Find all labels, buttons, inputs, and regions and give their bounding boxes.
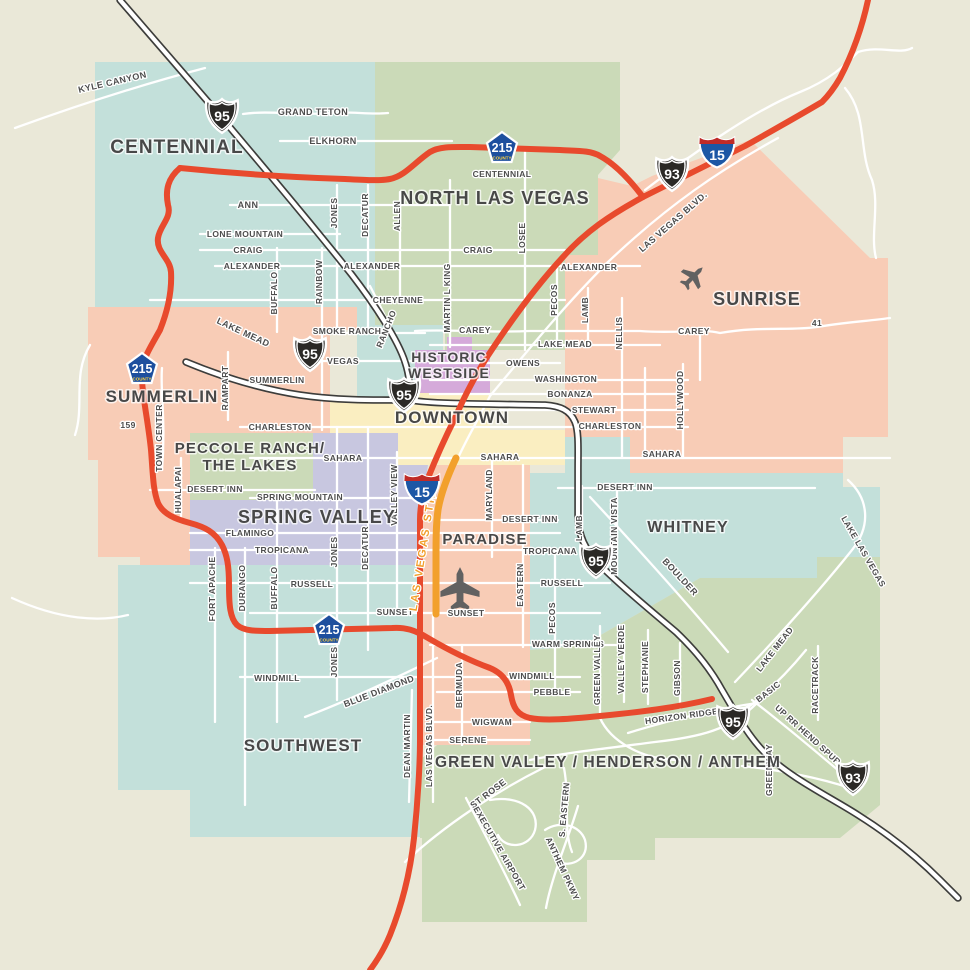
street-label-desert-inn: DESERT INN (502, 514, 557, 524)
street-label-summerlin: SUMMERLIN (249, 375, 304, 385)
street-label-windmill: WINDMILL (509, 671, 555, 681)
street-label-losee: LOSEE (517, 223, 527, 254)
region-label-southwest: SOUTHWEST (244, 736, 363, 755)
las-vegas-neighborhood-map: KYLE CANYONGRAND TETONELKHORNANNLONE MOU… (0, 0, 970, 970)
street-label-jones: JONES (329, 537, 339, 568)
street-label-pecos: PECOS (547, 602, 557, 634)
region-label-peccole-ranch: PECCOLE RANCH/ (175, 440, 325, 457)
us-shield-number: 95 (214, 108, 230, 124)
street-label-desert-inn: DESERT INN (187, 484, 242, 494)
street-label-spring-mountain: SPRING MOUNTAIN (257, 492, 343, 502)
street-label-las-vegas-blvd: LAS VEGAS BLVD. (424, 705, 434, 787)
street-label-town-center: TOWN CENTER (154, 404, 164, 472)
us-shield-number: 95 (725, 714, 741, 730)
street-label-maryland: MARYLAND (484, 469, 494, 521)
street-label-grand-teton: GRAND TETON (278, 107, 348, 117)
street-label-vegas: VEGAS (327, 356, 359, 366)
street-label-cheyenne: CHEYENNE (373, 295, 423, 305)
street-label-hollywood: HOLLYWOOD (675, 370, 685, 429)
street-label-hualapai: HUALAPAI (173, 467, 183, 513)
street-label-stewart: STEWART (572, 405, 617, 415)
street-label-159: 159 (120, 420, 135, 430)
street-label-tropicana: TROPICANA (255, 545, 309, 555)
street-label-pebble: PEBBLE (534, 687, 571, 697)
county-shield-number: 215 (319, 623, 340, 637)
street-label-carey: CAREY (678, 326, 710, 336)
region-label-spring-valley: SPRING VALLEY (238, 507, 396, 527)
street-label-russell: RUSSELL (541, 578, 583, 588)
region-label-sunrise: SUNRISE (713, 289, 801, 309)
street-label-ann: ANN (238, 200, 259, 210)
street-label-pecos: PECOS (549, 284, 559, 316)
street-label-jones: JONES (329, 647, 339, 678)
street-label-nellis: NELLIS (614, 317, 624, 350)
street-label-carey: CAREY (459, 325, 491, 335)
street-label-valley-verde: VALLEY VERDE (616, 624, 626, 693)
interstate-shield-number: 15 (414, 484, 430, 500)
us-shield-number: 95 (396, 387, 412, 403)
county-shield-number: 215 (132, 362, 153, 376)
street-label-sahara: SAHARA (481, 452, 520, 462)
street-label-decatur: DECATUR (360, 193, 370, 237)
street-label-durango: DURANGO (237, 565, 247, 612)
region-label-green-valley-henderson: GREEN VALLEY / HENDERSON / ANTHEM (435, 754, 781, 771)
street-label-sahara: SAHARA (643, 449, 682, 459)
street-label-lamb: LAMB (574, 515, 584, 541)
us-shield-number: 93 (845, 770, 861, 786)
street-label-racetrack: RACETRACK (810, 656, 820, 714)
street-label-dean-martin: DEAN MARTIN (402, 714, 412, 778)
street-label-buffalo: BUFFALO (269, 567, 279, 610)
interstate-shield-number: 15 (709, 147, 725, 163)
county-shield-banner: COUNTY (133, 377, 152, 382)
street-label-charleston: CHARLESTON (579, 421, 642, 431)
map-canvas: KYLE CANYONGRAND TETONELKHORNANNLONE MOU… (0, 0, 970, 970)
street-label-craig: CRAIG (233, 245, 262, 255)
us-shield-number: 95 (302, 346, 318, 362)
region-label-centennial: CENTENNIAL (110, 137, 243, 158)
street-label-russell: RUSSELL (291, 579, 333, 589)
street-label-rainbow: RAINBOW (314, 259, 324, 304)
us-shield-number: 95 (588, 553, 604, 569)
region-label-summerlin: SUMMERLIN (106, 387, 219, 406)
street-label-craig: CRAIG (463, 245, 492, 255)
county-shield-banner: COUNTY (320, 638, 339, 643)
region-label-historic-westside: HISTORIC (411, 349, 486, 365)
street-label-decatur: DECATUR (360, 526, 370, 570)
street-label-41: 41 (812, 318, 822, 328)
region-label-downtown: DOWNTOWN (395, 408, 509, 427)
street-label-stephanie: STEPHANIE (640, 641, 650, 693)
street-label-gibson: GIBSON (672, 660, 682, 696)
us-shield-number: 93 (664, 166, 680, 182)
street-label-smoke-ranch: SMOKE RANCH (313, 326, 382, 336)
region-label-whitney: WHITNEY (647, 519, 728, 536)
county-shield-banner: COUNTY (493, 156, 512, 161)
street-label-jones: JONES (329, 198, 339, 229)
street-label-wigwam: WIGWAM (472, 717, 512, 727)
street-label-elkhorn: ELKHORN (309, 136, 356, 146)
street-label-martin-l-king: MARTIN L KING (442, 263, 452, 332)
street-label-charleston: CHARLESTON (249, 422, 312, 432)
street-label-serene: SERENE (449, 735, 486, 745)
street-label-centennial: CENTENNIAL (473, 169, 532, 179)
region-label-peccole-ranch: THE LAKES (203, 457, 298, 474)
street-label-bonanza: BONANZA (547, 389, 592, 399)
street-label-sunset: SUNSET (448, 608, 485, 618)
street-label-lamb: LAMB (580, 297, 590, 323)
street-label-alexander: ALEXANDER (224, 261, 281, 271)
street-label-alexander: ALEXANDER (344, 261, 401, 271)
street-label-windmill: WINDMILL (254, 673, 300, 683)
region-label-paradise: PARADISE (442, 531, 527, 548)
street-label-rampart: RAMPART (220, 365, 230, 410)
street-label-green-valley: GREEN VALLEY (592, 635, 602, 705)
street-label-lone-mountain: LONE MOUNTAIN (207, 229, 283, 239)
street-label-sahara: SAHARA (324, 453, 363, 463)
street-label-buffalo: BUFFALO (269, 272, 279, 315)
county-shield-number: 215 (492, 141, 513, 155)
street-label-bermuda: BERMUDA (454, 662, 464, 708)
street-label-owens: OWENS (506, 358, 540, 368)
street-label-eastern: EASTERN (515, 563, 525, 606)
street-label-alexander: ALEXANDER (561, 262, 618, 272)
region-label-north-las-vegas: NORTH LAS VEGAS (400, 188, 590, 208)
street-label-flamingo: FLAMINGO (226, 528, 275, 538)
street-label-fort-apache: FORT APACHE (207, 557, 217, 622)
street-label-washington: WASHINGTON (535, 374, 597, 384)
street-label-lake-mead: LAKE MEAD (538, 339, 592, 349)
street-label-tropicana: TROPICANA (523, 546, 577, 556)
street-label-desert-inn: DESERT INN (597, 482, 652, 492)
